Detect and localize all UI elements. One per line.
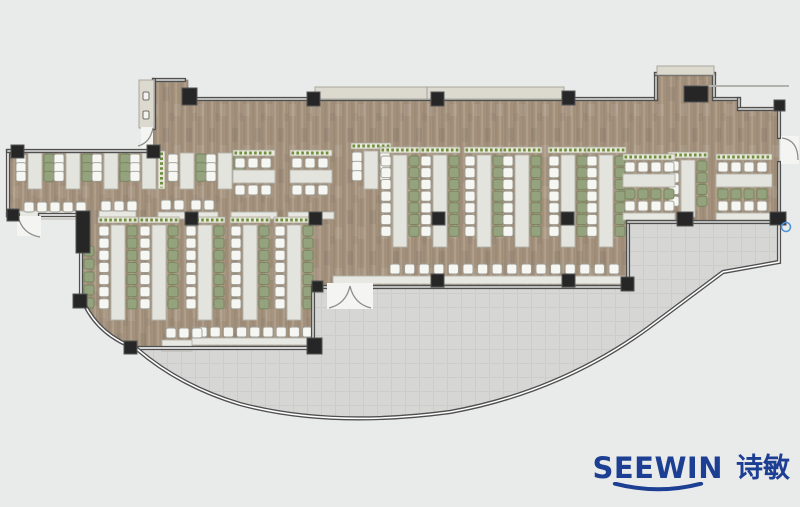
white-chair <box>92 171 102 181</box>
stool <box>507 264 517 274</box>
desk-run <box>66 153 80 189</box>
white-chair <box>503 215 513 225</box>
desk-run <box>433 155 447 247</box>
green-chair <box>577 226 587 236</box>
green-chair <box>259 287 269 297</box>
desk <box>716 174 772 187</box>
stool <box>390 264 400 274</box>
green-chair <box>493 179 503 189</box>
planter <box>502 147 542 153</box>
green-chair <box>259 275 269 285</box>
white-chair <box>231 238 241 248</box>
white-chair <box>503 156 513 166</box>
green-chair <box>84 259 94 269</box>
desk-run <box>287 225 301 320</box>
white-chair <box>130 171 140 181</box>
white-chair <box>465 215 475 225</box>
green-chair <box>449 156 459 166</box>
green-chair <box>744 189 754 199</box>
white-chair <box>305 185 315 195</box>
white-chair <box>140 299 150 309</box>
green-chair <box>449 203 459 213</box>
green-chair <box>214 299 224 309</box>
white-chair <box>731 162 741 172</box>
desk-run <box>243 225 257 320</box>
green-chair <box>409 203 419 213</box>
desk-run <box>180 153 194 189</box>
white-chair <box>465 168 475 178</box>
white-chair <box>275 226 285 236</box>
stool <box>174 200 184 210</box>
brand-logo: SEEWIN 诗敏 <box>592 454 790 483</box>
green-chair <box>214 275 224 285</box>
stool <box>114 201 124 211</box>
green-chair <box>697 185 707 195</box>
white-chair <box>261 185 271 195</box>
green-chair <box>493 191 503 201</box>
planter <box>586 147 626 153</box>
stool <box>101 201 111 211</box>
green-chair <box>664 189 674 199</box>
white-chair <box>757 201 767 211</box>
white-chair <box>352 161 362 171</box>
green-chair <box>127 238 137 248</box>
white-chair <box>381 179 391 189</box>
structural-column <box>147 145 160 158</box>
green-chair <box>409 168 419 178</box>
green-chair <box>577 191 587 201</box>
white-chair <box>352 171 362 181</box>
planter <box>464 147 504 153</box>
structural-column <box>307 338 322 354</box>
desk-run <box>561 155 575 247</box>
white-chair <box>503 179 513 189</box>
structural-column <box>677 212 693 226</box>
white-chair <box>235 158 245 168</box>
green-chair <box>449 226 459 236</box>
stool <box>179 328 189 338</box>
green-chair <box>531 226 541 236</box>
stool <box>463 264 473 274</box>
stool <box>419 264 429 274</box>
white-chair <box>651 201 661 211</box>
green-chair <box>82 171 92 181</box>
white-chair <box>54 171 64 181</box>
white-chair <box>99 226 109 236</box>
green-chair <box>697 161 707 171</box>
green-chair <box>651 189 661 199</box>
counter-table <box>333 276 625 284</box>
white-chair <box>664 162 674 172</box>
green-chair <box>127 275 137 285</box>
green-chair <box>625 189 635 199</box>
structural-column <box>774 100 785 111</box>
stool <box>565 264 575 274</box>
white-chair <box>99 250 109 260</box>
white-chair <box>549 168 559 178</box>
green-chair <box>168 262 178 272</box>
white-chair <box>549 226 559 236</box>
white-chair <box>235 185 245 195</box>
white-chair <box>421 226 431 236</box>
white-chair <box>587 215 597 225</box>
white-chair <box>549 203 559 213</box>
white-chair <box>275 299 285 309</box>
white-chair <box>587 191 597 201</box>
stool <box>289 327 299 337</box>
white-chair <box>231 299 241 309</box>
green-chair <box>168 299 178 309</box>
white-chair <box>231 226 241 236</box>
desk <box>290 170 332 183</box>
green-chair <box>44 171 54 181</box>
green-chair <box>168 226 178 236</box>
structural-column <box>76 211 90 253</box>
structural-column <box>73 294 87 308</box>
white-chair <box>638 162 648 172</box>
stool <box>263 327 273 337</box>
green-chair <box>259 238 269 248</box>
white-chair <box>549 191 559 201</box>
desk-run <box>198 225 212 320</box>
green-chair <box>638 189 648 199</box>
white-chair <box>292 185 302 195</box>
green-chair <box>531 191 541 201</box>
white-chair <box>718 201 728 211</box>
bump-ledge <box>657 66 714 75</box>
green-chair <box>303 262 313 272</box>
green-chair <box>409 191 419 201</box>
stool <box>492 264 502 274</box>
structural-column <box>684 86 708 102</box>
white-chair <box>465 156 475 166</box>
green-chair <box>531 215 541 225</box>
brand-name-cjk: 诗敏 <box>736 455 790 482</box>
white-chair <box>625 162 635 172</box>
stool <box>192 328 202 338</box>
white-chair <box>248 158 258 168</box>
green-chair <box>409 215 419 225</box>
structural-column <box>7 209 19 221</box>
green-chair <box>214 287 224 297</box>
white-chair <box>140 250 150 260</box>
structural-column <box>561 212 574 225</box>
green-chair <box>84 272 94 282</box>
white-chair <box>99 287 109 297</box>
white-chair <box>625 201 635 211</box>
desk-run <box>393 155 407 247</box>
stool <box>580 264 590 274</box>
green-chair <box>214 238 224 248</box>
green-chair <box>303 226 313 236</box>
green-chair <box>697 173 707 183</box>
stool <box>166 328 176 338</box>
green-chair <box>493 226 503 236</box>
desk <box>233 170 275 183</box>
white-chair <box>381 226 391 236</box>
white-chair <box>664 201 674 211</box>
green-chair <box>577 168 587 178</box>
green-chair <box>718 189 728 199</box>
stool <box>204 200 214 210</box>
stool <box>191 200 201 210</box>
white-chair <box>231 262 241 272</box>
stool <box>478 264 488 274</box>
planter <box>233 150 275 156</box>
green-chair <box>757 189 767 199</box>
planter <box>290 150 332 156</box>
white-chair <box>275 287 285 297</box>
stool <box>609 264 619 274</box>
green-chair <box>615 191 625 201</box>
green-chair <box>531 156 541 166</box>
stool <box>405 264 415 274</box>
stool <box>127 201 137 211</box>
green-chair <box>697 196 707 206</box>
green-chair <box>127 262 137 272</box>
green-chair <box>577 203 587 213</box>
white-chair <box>744 201 754 211</box>
desk-run <box>364 151 378 189</box>
white-chair <box>503 191 513 201</box>
desk-run <box>477 155 491 247</box>
white-chair <box>140 262 150 272</box>
white-chair <box>140 287 150 297</box>
green-chair <box>449 179 459 189</box>
white-chair <box>381 215 391 225</box>
white-chair <box>275 262 285 272</box>
green-chair <box>127 250 137 260</box>
white-chair <box>421 203 431 213</box>
white-chair <box>587 156 597 166</box>
white-chair <box>99 275 109 285</box>
white-chair <box>503 226 513 236</box>
green-chair <box>577 215 587 225</box>
structural-column <box>11 145 24 158</box>
structural-column <box>124 341 137 354</box>
white-chair <box>638 201 648 211</box>
desk-run <box>681 160 695 217</box>
white-chair <box>421 215 431 225</box>
white-chair <box>168 171 178 181</box>
white-chair <box>16 171 26 181</box>
green-chair <box>259 262 269 272</box>
white-chair <box>744 162 754 172</box>
desk-run <box>218 153 232 189</box>
white-chair <box>99 299 109 309</box>
white-chair <box>318 185 328 195</box>
stool <box>536 264 546 274</box>
green-chair <box>531 179 541 189</box>
white-chair <box>186 238 196 248</box>
white-chair <box>549 179 559 189</box>
white-chair <box>275 275 285 285</box>
white-chair <box>275 238 285 248</box>
green-chair <box>449 168 459 178</box>
white-chair <box>248 185 258 195</box>
green-chair <box>615 226 625 236</box>
desk-run <box>515 155 529 247</box>
white-chair <box>587 168 597 178</box>
green-chair <box>449 215 459 225</box>
stool <box>448 264 458 274</box>
green-chair <box>531 203 541 213</box>
green-chair <box>493 156 503 166</box>
white-chair <box>140 238 150 248</box>
green-chair <box>168 287 178 297</box>
stool <box>521 264 531 274</box>
green-chair <box>214 226 224 236</box>
green-chair <box>214 262 224 272</box>
structural-column <box>621 277 634 291</box>
floor-plan <box>0 0 800 507</box>
stool <box>276 327 286 337</box>
structural-column <box>312 281 323 292</box>
stool <box>50 202 60 212</box>
green-chair <box>493 168 503 178</box>
white-chair <box>140 226 150 236</box>
white-chair <box>549 215 559 225</box>
structural-column <box>182 88 197 105</box>
white-chair <box>352 152 362 162</box>
desk <box>623 174 675 187</box>
white-chair <box>292 158 302 168</box>
white-chair <box>587 203 597 213</box>
desk-run <box>152 225 166 320</box>
green-chair <box>127 299 137 309</box>
white-chair <box>261 158 271 168</box>
counter-table <box>623 213 675 220</box>
white-chair <box>99 238 109 248</box>
structural-column <box>307 92 320 106</box>
planter <box>380 147 420 153</box>
brand-name-latin: SEEWIN <box>592 451 723 485</box>
logo-swoosh-icon <box>611 482 705 494</box>
green-chair <box>409 226 419 236</box>
white-chair <box>206 171 216 181</box>
white-chair <box>186 262 196 272</box>
desk-run <box>104 153 118 189</box>
green-chair <box>259 250 269 260</box>
green-chair <box>168 275 178 285</box>
stool <box>250 327 260 337</box>
white-chair <box>186 299 196 309</box>
louver-fixture <box>143 111 149 119</box>
green-chair <box>259 226 269 236</box>
stool <box>24 202 34 212</box>
white-chair <box>186 250 196 260</box>
green-chair <box>409 179 419 189</box>
white-chair <box>318 158 328 168</box>
planter <box>139 217 179 223</box>
green-chair <box>127 287 137 297</box>
white-chair <box>549 156 559 166</box>
green-chair <box>196 171 206 181</box>
louver-fixture <box>143 92 149 100</box>
white-chair <box>718 162 728 172</box>
green-chair <box>120 171 130 181</box>
green-chair <box>493 203 503 213</box>
structural-column <box>562 91 575 105</box>
white-chair <box>465 203 475 213</box>
stool <box>223 327 233 337</box>
white-chair <box>381 168 391 178</box>
desk-run <box>28 153 42 189</box>
white-chair <box>381 191 391 201</box>
green-chair <box>259 299 269 309</box>
structural-column <box>562 274 575 287</box>
green-chair <box>409 156 419 166</box>
floor-plan-canvas: SEEWIN 诗敏 <box>0 0 800 507</box>
green-chair <box>127 226 137 236</box>
green-chair <box>168 250 178 260</box>
white-chair <box>465 226 475 236</box>
green-chair <box>214 250 224 260</box>
white-chair <box>587 179 597 189</box>
white-chair <box>587 226 597 236</box>
white-chair <box>140 275 150 285</box>
white-chair <box>421 156 431 166</box>
stool <box>63 202 73 212</box>
desk-run <box>599 155 613 247</box>
counter-table <box>716 213 772 220</box>
stool <box>210 327 220 337</box>
planter <box>230 217 270 223</box>
white-chair <box>503 168 513 178</box>
white-chair <box>421 168 431 178</box>
green-chair <box>168 238 178 248</box>
stool <box>594 264 604 274</box>
white-chair <box>421 191 431 201</box>
white-chair <box>186 275 196 285</box>
stool <box>161 200 171 210</box>
green-chair <box>493 215 503 225</box>
green-chair <box>449 191 459 201</box>
stool <box>37 202 47 212</box>
white-chair <box>99 262 109 272</box>
white-chair <box>757 162 767 172</box>
white-chair <box>503 203 513 213</box>
white-chair <box>651 162 661 172</box>
green-chair <box>577 156 587 166</box>
white-chair <box>186 287 196 297</box>
brand-latin-wrap: SEEWIN <box>592 454 723 483</box>
green-chair <box>731 189 741 199</box>
desk-run <box>111 225 125 320</box>
structural-column <box>185 212 198 225</box>
white-chair <box>231 250 241 260</box>
stool <box>434 264 444 274</box>
planter <box>98 217 138 223</box>
white-chair <box>465 179 475 189</box>
counter-table <box>192 338 310 345</box>
structural-column <box>431 92 444 106</box>
green-chair <box>303 238 313 248</box>
louver-unit <box>139 80 154 128</box>
white-chair <box>731 201 741 211</box>
green-chair <box>303 250 313 260</box>
white-chair <box>421 179 431 189</box>
green-chair <box>615 203 625 213</box>
structural-column <box>431 274 444 287</box>
stool <box>551 264 561 274</box>
white-chair <box>186 226 196 236</box>
white-chair <box>231 287 241 297</box>
white-chair <box>381 203 391 213</box>
white-chair <box>275 250 285 260</box>
white-chair <box>231 275 241 285</box>
white-chair <box>465 191 475 201</box>
